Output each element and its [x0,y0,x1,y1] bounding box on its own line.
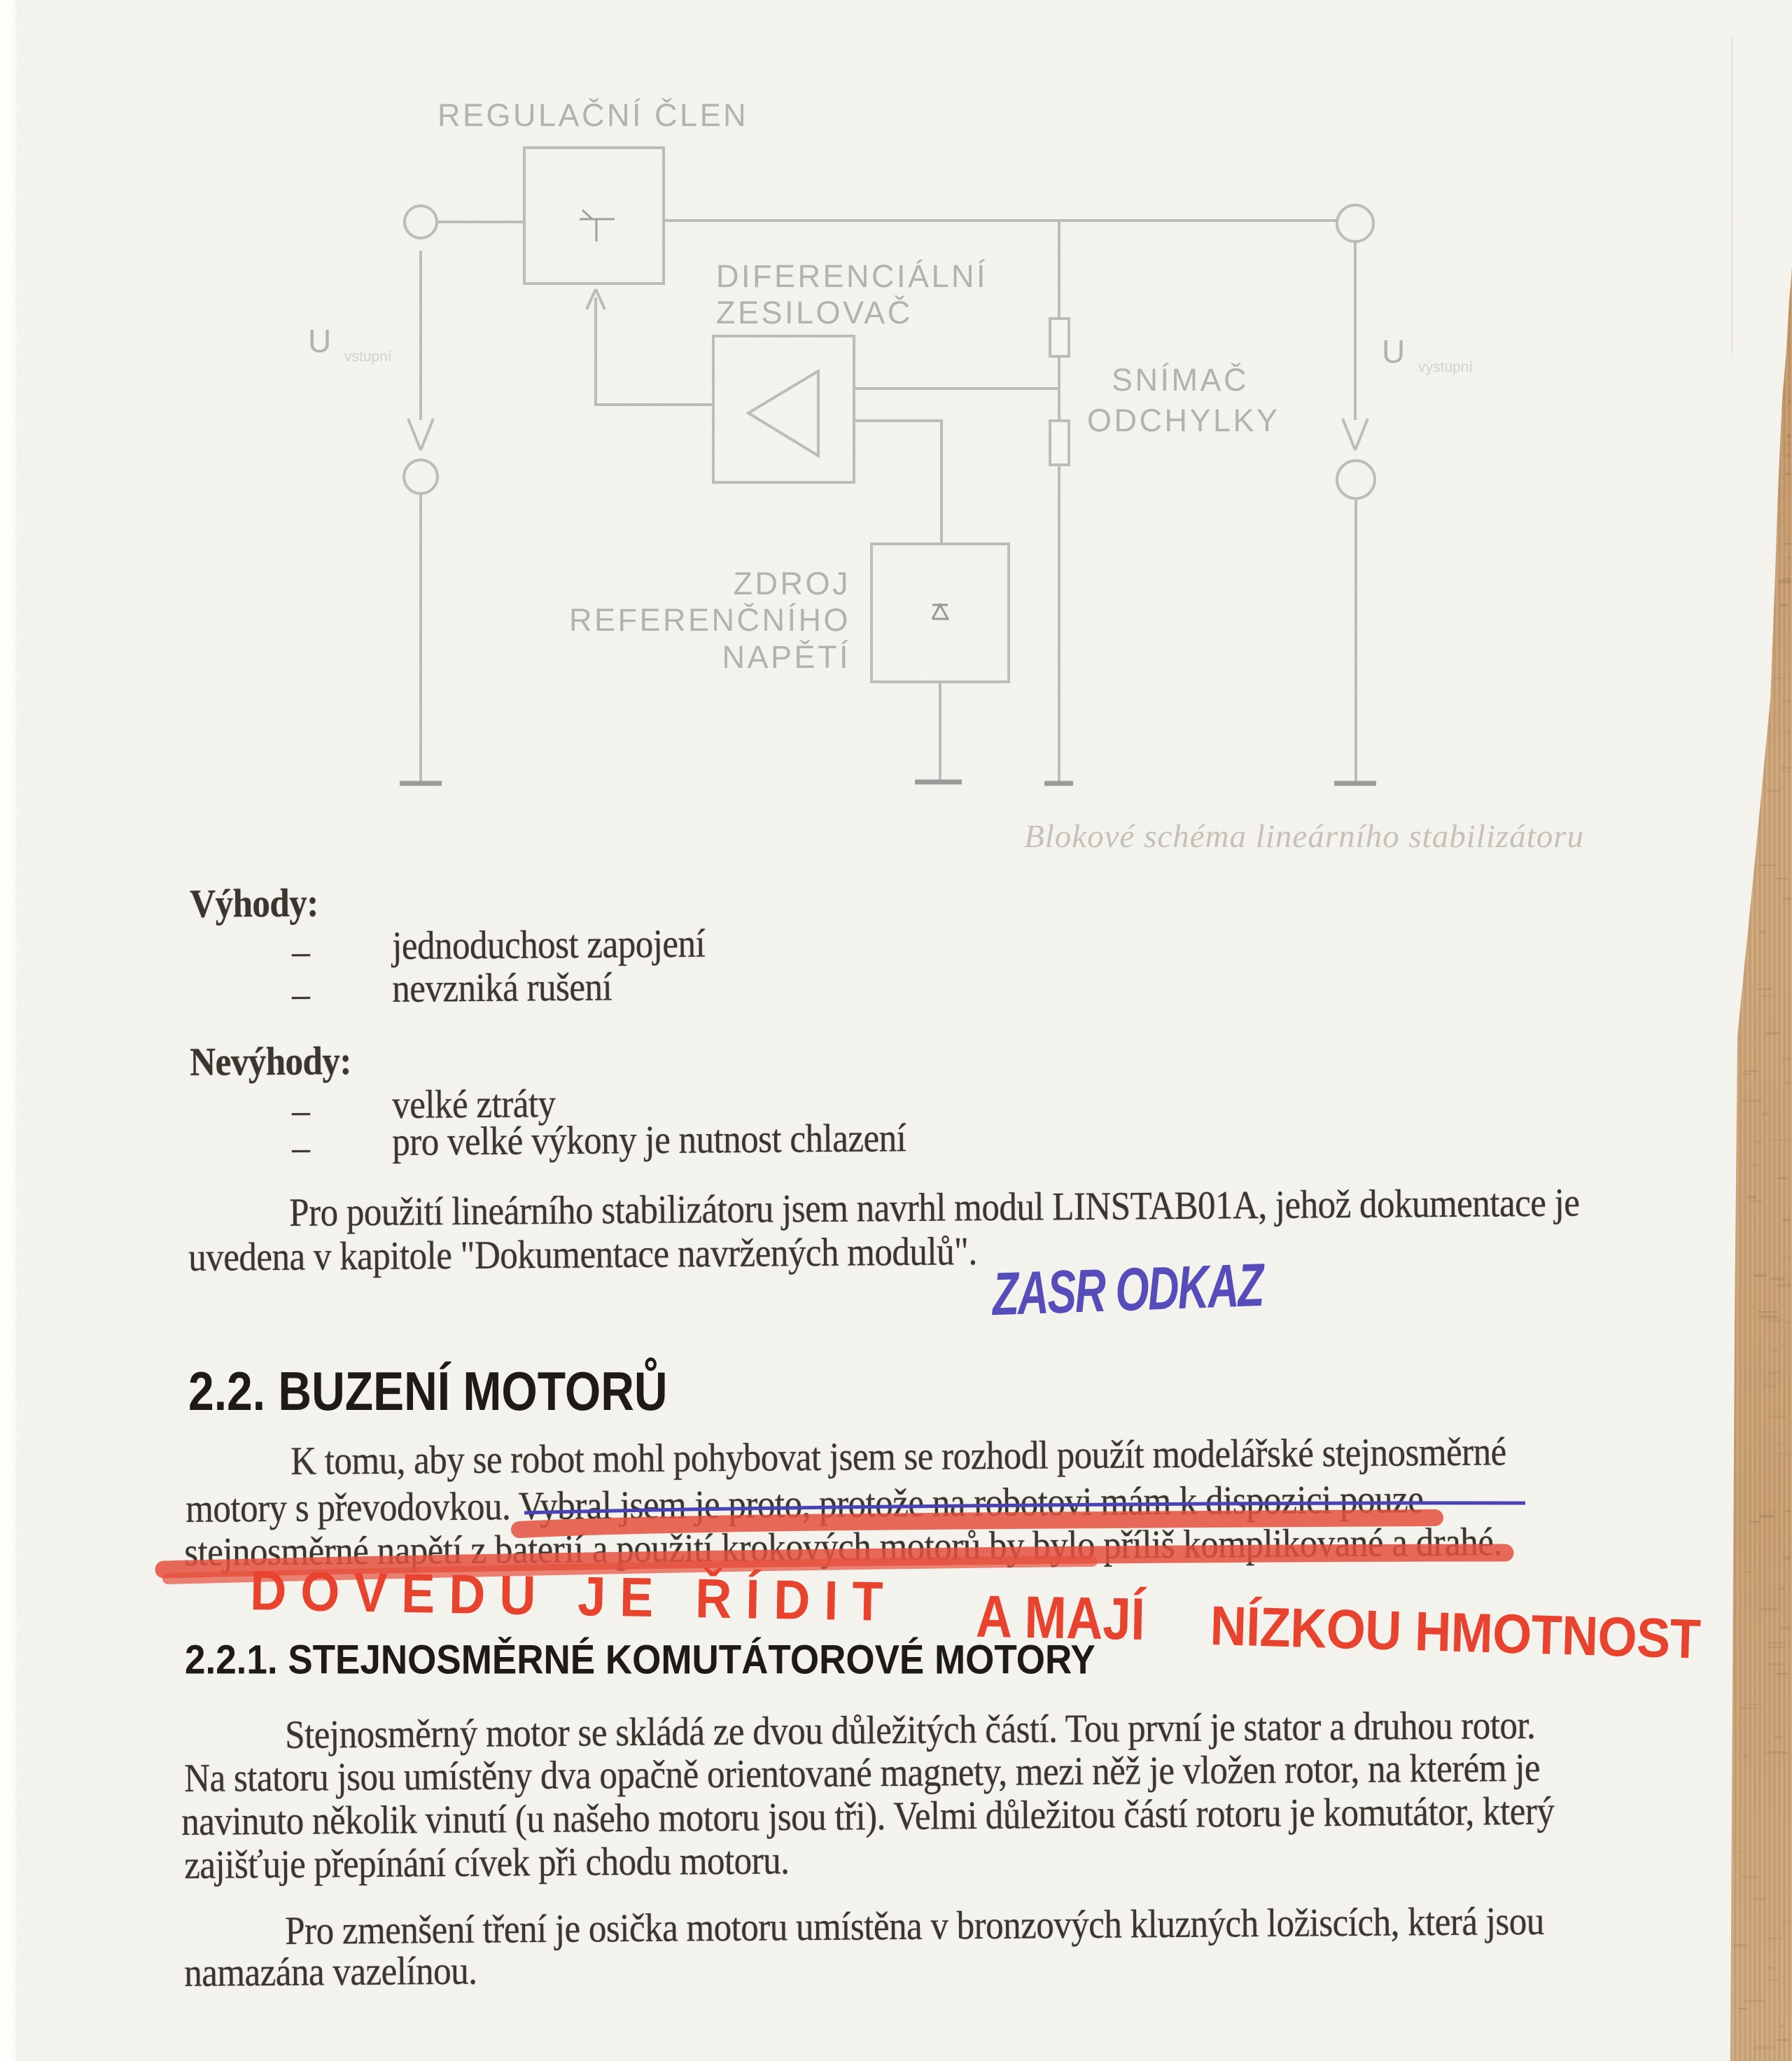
svg-text:U: U [308,323,331,359]
svg-text:vstupní: vstupní [344,349,392,365]
svg-text:U: U [1382,333,1405,370]
svg-text:NAPĚTÍ: NAPĚTÍ [722,639,850,675]
svg-text:ZDROJ: ZDROJ [734,566,851,601]
svg-text:SNÍMAČ: SNÍMAČ [1112,362,1249,398]
svg-text:REGULAČNÍ ČLEN: REGULAČNÍ ČLEN [437,97,748,133]
svg-text:DIFERENCIÁLNÍ: DIFERENCIÁLNÍ [716,258,988,294]
svg-text:ZESILOVAČ: ZESILOVAČ [716,295,913,330]
svg-text:ODCHYLKY: ODCHYLKY [1087,403,1280,438]
svg-text:REFERENČNÍHO: REFERENČNÍHO [569,602,850,638]
svg-text:výstupní: výstupní [1418,359,1473,375]
